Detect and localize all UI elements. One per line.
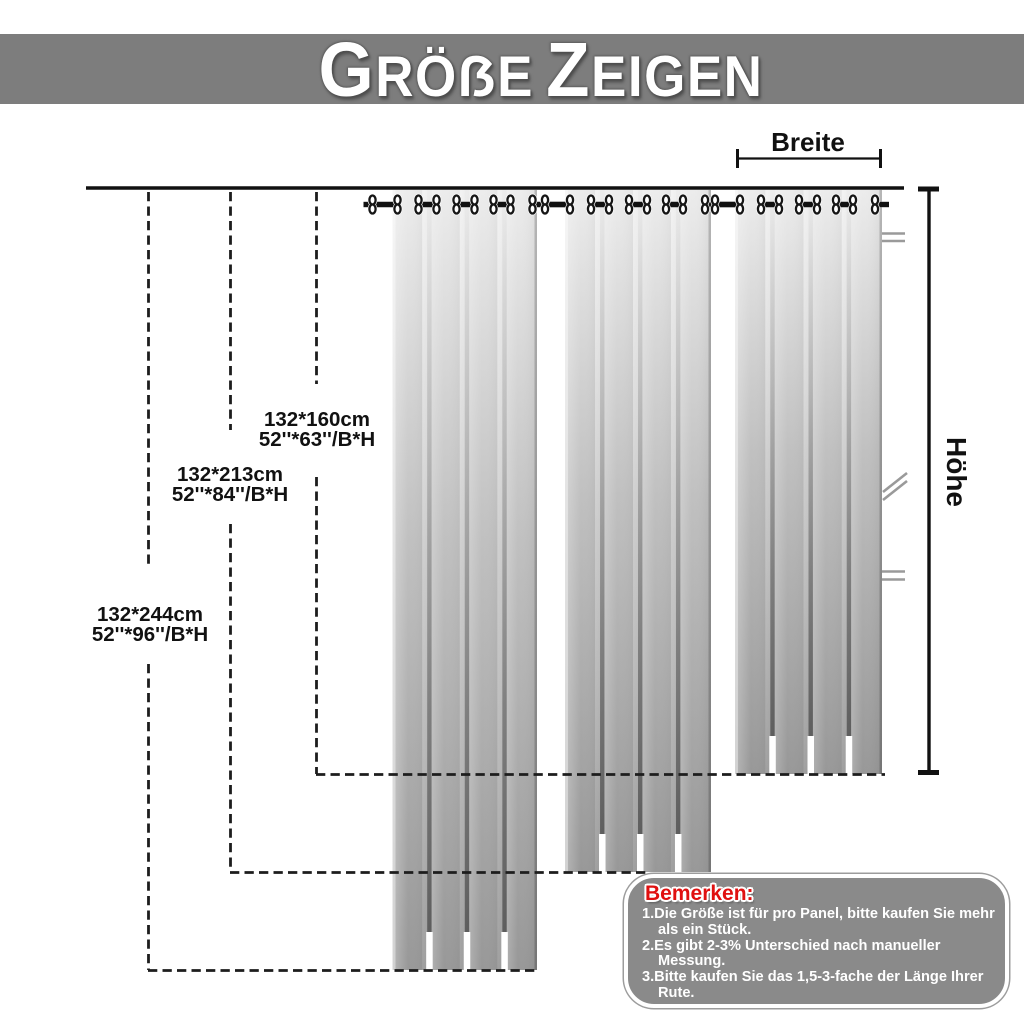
svg-text:52''*96''/B*H: 52''*96''/B*H	[92, 623, 208, 646]
svg-text:Breite: Breite	[771, 127, 845, 157]
svg-text:52''*84''/B*H: 52''*84''/B*H	[172, 483, 288, 506]
svg-text:Höhe: Höhe	[941, 437, 972, 507]
svg-text:52''*63''/B*H: 52''*63''/B*H	[259, 428, 375, 451]
